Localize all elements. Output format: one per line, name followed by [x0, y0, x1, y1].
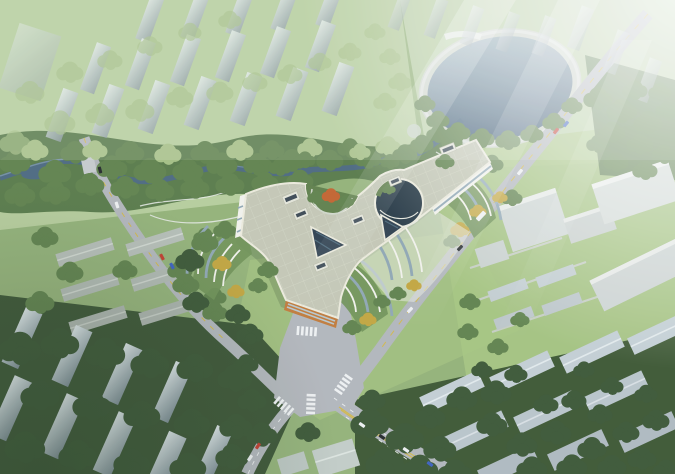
aerial-render-image	[0, 0, 675, 474]
scene-canvas	[0, 0, 675, 474]
atmosphere-haze	[0, 0, 675, 474]
